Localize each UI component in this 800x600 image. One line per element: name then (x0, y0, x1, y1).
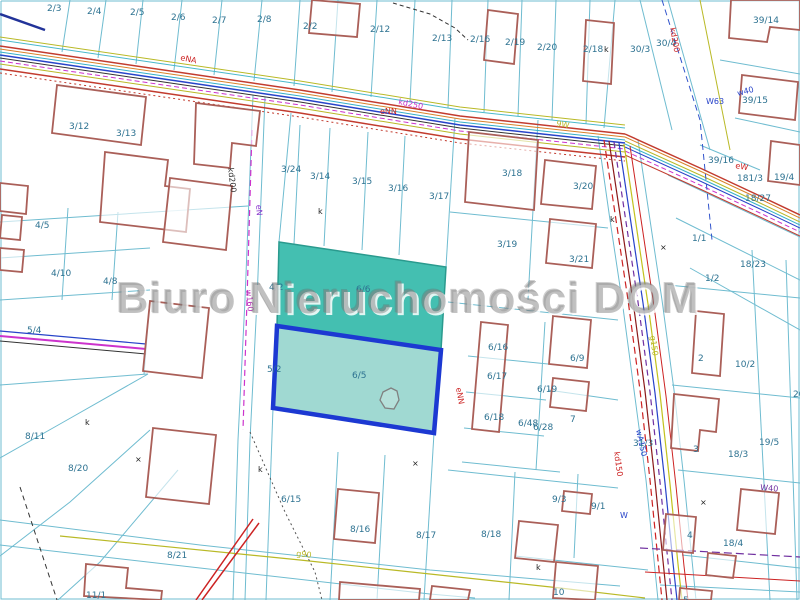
parcel-label: 10 (553, 588, 565, 598)
parcel-label: 6/17 (487, 372, 507, 382)
utility-annotation: k (604, 45, 609, 54)
boundary-line (410, 0, 415, 102)
boundary-line (266, 408, 273, 600)
parcel-label: 4 (687, 531, 693, 541)
parcel-label: 3/20 (573, 182, 593, 192)
boundary-line (214, 0, 222, 75)
utility-annotation: k (318, 207, 323, 216)
parcel-label: 18/3 (728, 450, 748, 460)
parcel-label: 2/16 (470, 35, 490, 45)
utility-annotation: k (536, 563, 541, 572)
parcel-label: 181/3 (737, 174, 763, 184)
utility-line (700, 0, 730, 150)
parcel-label: 5/2 (267, 365, 281, 375)
utility-annotation: k (610, 215, 615, 224)
parcel-label: 3/24 (281, 165, 301, 175)
boundary-line (371, 0, 377, 97)
parcel-label: 2/7 (212, 16, 226, 26)
utility-line (202, 523, 259, 600)
boundary-line (245, 97, 265, 600)
parcel-label: 30/3 (630, 45, 650, 55)
building-outline (562, 491, 592, 514)
boundary-line (424, 433, 434, 600)
boundary-line (377, 455, 385, 600)
parcel-label: 5/4 (27, 326, 42, 336)
parcel-label: 8/18 (481, 530, 501, 540)
utility-annotation: eNN (380, 107, 397, 116)
utility-annotation: eW (735, 161, 749, 172)
utility-annotation: × (135, 455, 142, 464)
utility-line (604, 140, 662, 600)
boundary-line (552, 0, 556, 120)
boundary-line (462, 462, 560, 472)
utility-annotation: eN (254, 204, 264, 216)
boundary-line (574, 474, 578, 558)
utility-annotation: k (258, 465, 263, 474)
utility-annotation: W40 (760, 483, 779, 494)
parcel-label: 2/19 (505, 38, 525, 48)
parcel-label: 6/18 (484, 413, 504, 423)
utility-annotation: × (412, 459, 419, 468)
utility-line (0, 14, 45, 30)
utility-annotation: 9W (556, 119, 570, 130)
parcel-label: 3/16 (388, 184, 408, 194)
parcel-label: 2/20 (537, 43, 557, 53)
boundary-line (254, 0, 262, 81)
boundary-line (0, 374, 148, 385)
parcel-label: 8/11 (25, 432, 45, 442)
boundary-line (678, 470, 800, 483)
parcel-label: 2/3 (47, 4, 61, 14)
parcel-label: 8/16 (350, 525, 370, 535)
boundary-line (279, 113, 291, 242)
boundary-line (399, 136, 405, 255)
parcel-label: 6/5 (352, 371, 366, 381)
boundary-line (294, 0, 300, 86)
utility-line (196, 519, 253, 600)
parcel-label: 7 (570, 415, 576, 425)
parcel-label: 3 (693, 445, 699, 455)
building-outline (692, 311, 724, 376)
building-outline (671, 394, 719, 451)
parcel-label: 39/16 (708, 156, 734, 166)
parcel-label: 3/17 (429, 192, 449, 202)
parcel-label: 2/18 (583, 45, 603, 55)
parcel-label: 9/3 (552, 495, 566, 505)
parcel-label: 3/13 (116, 129, 136, 139)
boundary-line (668, 285, 800, 298)
parcel-label: 3/12 (69, 122, 89, 132)
parcel-label: 2/2 (303, 22, 317, 32)
parcel-label: 18/4 (723, 539, 743, 549)
building-outline (339, 582, 420, 600)
utility-annotation: kd150 (612, 451, 624, 477)
utility-line (614, 142, 672, 600)
parcel-label: 8/20 (68, 464, 88, 474)
parcel-label: 3/14 (310, 172, 330, 182)
parcel-label: 2/8 (257, 15, 272, 25)
parcel-label: 3/19 (497, 240, 517, 250)
boundary-line (720, 60, 800, 74)
utility-annotation: eNN (454, 387, 466, 405)
boundary-line (448, 302, 618, 320)
parcel-label: 10/2 (735, 360, 755, 370)
parcel-label: 4/2 (269, 283, 283, 293)
building-outline (0, 248, 24, 272)
parcel-label: 6/9 (570, 354, 585, 364)
parcel-label: 3/15 (352, 177, 372, 187)
utility-annotation: k (85, 418, 90, 427)
parcel-label: 8/17 (416, 531, 436, 541)
parcel-label: 6/16 (488, 343, 508, 353)
parcel-label: 6/28 (533, 423, 553, 433)
parcel-label: 11/1 (86, 591, 106, 600)
parcel-label: 6/15 (281, 495, 301, 505)
parcel-label: 2 (698, 354, 704, 364)
parcel-label: 4/10 (51, 269, 71, 279)
parcel-label: 18/27 (745, 194, 771, 204)
boundary-line (448, 470, 618, 488)
parcel-label: 39/14 (753, 16, 779, 26)
boundary-line (294, 125, 300, 244)
highlighted-parcels-layer: 6/66/5 (273, 242, 446, 433)
cadastral-map-viewport: 6/66/5 2/32/42/52/62/72/82/22/122/132/16… (0, 0, 800, 600)
parcel-label: 1/2 (705, 274, 719, 284)
building-outline (163, 178, 232, 250)
utility-annotation: W (620, 511, 628, 520)
parcel-label: 19/4 (774, 173, 794, 183)
utility-annotation: × (700, 498, 707, 507)
boundary-line (640, 0, 672, 130)
utility-annotation: × (660, 243, 667, 252)
boundary-line (448, 0, 452, 108)
boundary-line (786, 260, 797, 600)
parcel-label: 3/18 (502, 169, 522, 179)
parcel-label: 6/6 (356, 285, 371, 295)
parcel-label: 1/1 (692, 234, 706, 244)
parcel-label: 8/21 (167, 551, 187, 561)
building-outline (0, 183, 28, 214)
utility-line (393, 3, 468, 40)
parcel-label: 3/21 (569, 255, 589, 265)
utility-annotation: W63 (706, 97, 724, 106)
boundary-line (324, 128, 330, 246)
parcel-label: 9/1 (591, 502, 605, 512)
parcel-label: 4/5 (35, 221, 49, 231)
parcel-label: 2/4 (87, 7, 102, 17)
parcel-label: 4/8 (103, 277, 118, 287)
boundary-line (0, 290, 150, 300)
building-outline (146, 428, 216, 504)
utility-annotation: w160 (244, 289, 255, 312)
boundary-line (536, 322, 545, 470)
building-outline (0, 215, 22, 240)
boundary-line (62, 0, 70, 52)
parcel-label: 18/23 (740, 260, 766, 270)
parcel-label: 2/5 (130, 8, 144, 18)
boundary-line (0, 374, 148, 458)
parcel-label: 20/7 (793, 390, 800, 400)
boundary-line (752, 250, 770, 600)
building-outline (430, 586, 470, 600)
utility-line (243, 130, 252, 430)
parcel-label: 5 (683, 596, 689, 600)
building-outline (515, 521, 558, 562)
parcel-label: 2/13 (432, 34, 452, 44)
parcel-label: 2/12 (370, 25, 390, 35)
building-outline (737, 489, 779, 534)
boundary-line (509, 472, 515, 600)
boundary-line (362, 132, 368, 250)
parcel-label: 6/19 (537, 385, 557, 395)
boundary-line (668, 0, 710, 150)
building-outline (706, 553, 736, 578)
parcel-label: 2/6 (171, 13, 186, 23)
utility-line (20, 487, 57, 600)
parcel-label: 19/5 (759, 438, 779, 448)
parcel-label: 39/15 (742, 96, 768, 106)
boundary-line (682, 555, 800, 568)
utility-annotation: g90 (296, 549, 312, 560)
cadastral-map-canvas: 6/66/5 2/32/42/52/62/72/82/22/122/132/16… (0, 0, 800, 600)
building-outline (143, 301, 209, 378)
